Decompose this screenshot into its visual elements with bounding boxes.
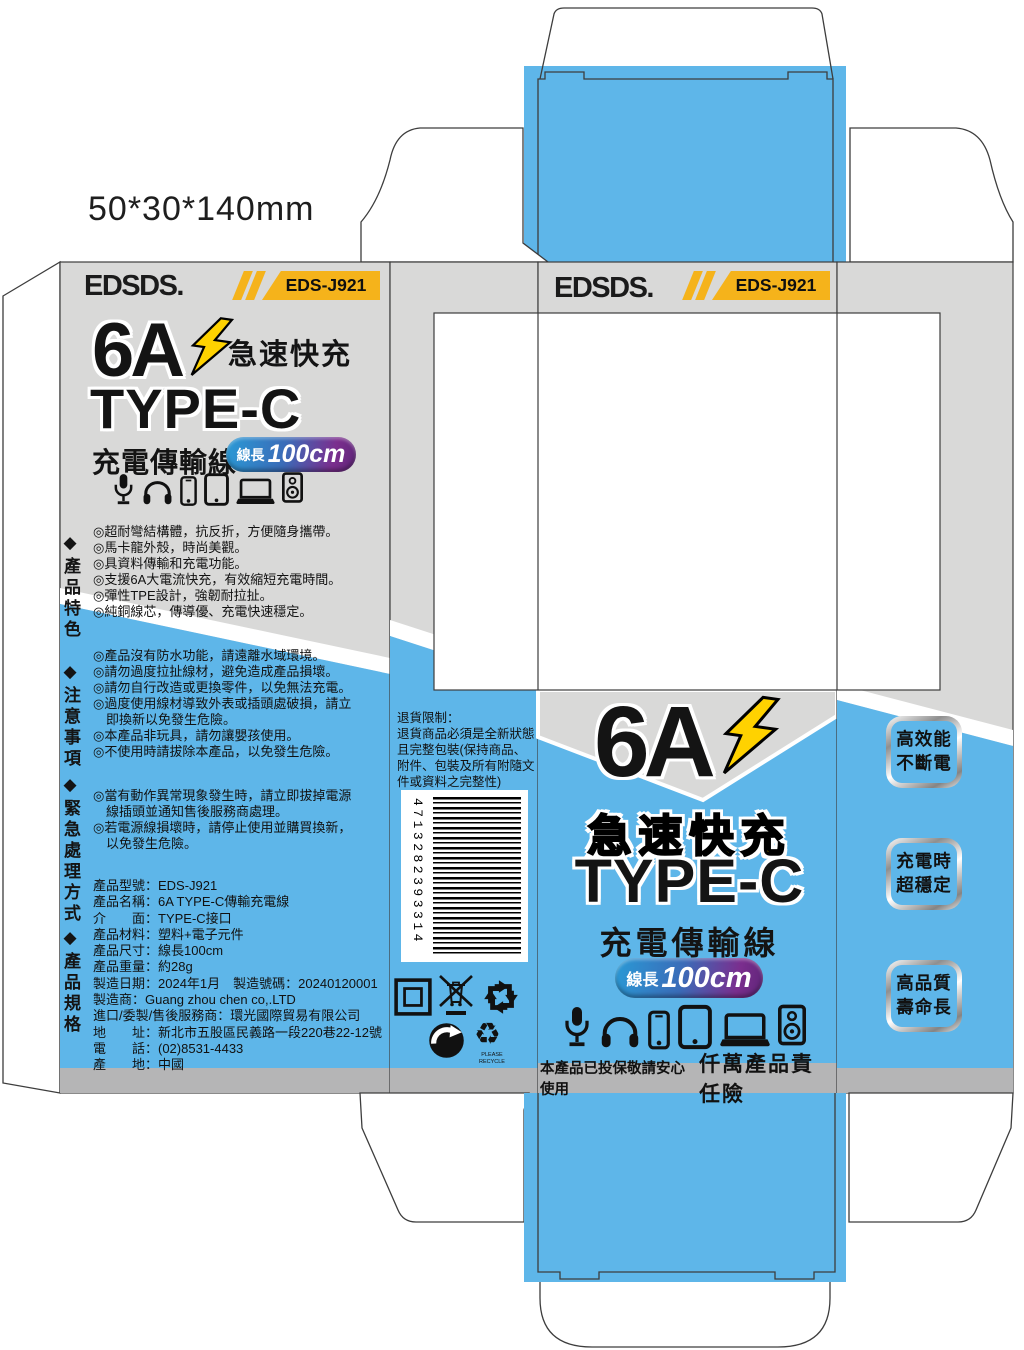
speaker-icon <box>778 1004 806 1046</box>
return-policy-line: 退貨商品必須是全新狀態 <box>397 726 535 742</box>
return-policy-line: 件或資料之完整性) <box>397 774 535 790</box>
feature-line: ◎彈性TPE設計，強韌耐拉扯。 <box>93 588 341 604</box>
smartphone-icon <box>180 476 197 506</box>
connector-title-back: TYPE-C <box>90 381 301 437</box>
caution-line: ◎本產品非玩具，請勿讓嬰孩使用。 <box>93 728 351 744</box>
headphones-icon <box>600 1014 640 1050</box>
spec-line: 產 地：中國 <box>93 1057 382 1073</box>
badge-line: 高品質 <box>896 972 952 996</box>
recycling-arrows-icon <box>480 976 522 1018</box>
spec-line: 介 面：TYPE-C接口 <box>93 911 382 927</box>
spec-line: 地 址：新北市五股區民義路一段220巷22-12號 <box>93 1025 382 1041</box>
right-panel-bottom-strip <box>837 1068 1013 1093</box>
badge-line: 充電時 <box>896 850 952 874</box>
bottom-flap-blue <box>524 1093 846 1282</box>
tablet-icon <box>204 473 229 506</box>
microphone-icon <box>562 1004 592 1050</box>
spec-line: 產品名稱：6A TYPE-C傳輸充電線 <box>93 894 382 910</box>
spec-line: 製造商：Guang zhou chen co,.LTD <box>93 992 382 1008</box>
recycle-caption: PLEASE RECYCLE <box>470 1052 514 1065</box>
model-badge-back: EDS-J921 <box>238 271 382 300</box>
features-list: ◎超耐彎結構體，抗反折，方便隨身攜帶。 ◎馬卡龍外殼，時尚美觀。 ◎具資料傳輸和… <box>93 524 341 620</box>
amp-logo-text: 6A <box>594 686 710 798</box>
emergency-list: ◎當有動作異常現象發生時，請立即拔掉電源 線插頭並通知售後服務商處理。 ◎若電源… <box>93 788 351 852</box>
feature-line: ◎純銅線芯，傳導優、充電快速穩定。 <box>93 604 341 620</box>
speaker-icon <box>282 472 303 503</box>
spec-line: 電 話：(02)8531-4433 <box>93 1041 382 1057</box>
emergency-line: ◎當有動作異常現象發生時，請立即拔掉電源 <box>93 788 351 804</box>
return-policy-line: 退貨限制： <box>397 710 535 726</box>
feature-line: ◎具資料傳輸和充電功能。 <box>93 556 341 572</box>
display-window-cutout <box>434 313 940 690</box>
barcode-bars <box>433 797 521 955</box>
cautions-section-title: ◆注意事項 <box>58 662 83 770</box>
recycle-icons-block: ♻ PLEASE RECYCLE <box>392 972 532 1067</box>
caution-line: ◎請勿自行改造或更換零件，以免無法充電。 <box>93 680 351 696</box>
length-label: 線長 <box>237 445 265 465</box>
return-policy-text: 退貨限制： 退貨商品必須是全新狀態 且完整包裝(保持商品、 附件、包裝及所有附隨… <box>397 710 535 790</box>
bottom-right-flap <box>849 1093 1013 1222</box>
length-label: 線長 <box>626 966 658 990</box>
model-number-text: EDS-J921 <box>276 275 367 296</box>
feature-badge-lifespan: 高品質 壽命長 <box>886 960 962 1032</box>
smartphone-icon <box>648 1010 670 1050</box>
brand-logo-back: EDSDS. <box>84 270 183 303</box>
packaging-dieline-canvas: 50*30*140mm EDSDS. EDS-J921 6A 急速快充 TYPE… <box>0 0 1024 1350</box>
bottom-tuck-lid-outline <box>540 1282 830 1347</box>
return-policy-line: 附件、包裝及所有附隨文 <box>397 758 535 774</box>
spec-line: 進口/委製/售後服務商：環光國際貿易有限公司 <box>93 1008 382 1024</box>
badge-line: 不斷電 <box>896 752 952 776</box>
spec-line: 製造日期：2024年1月 製造號碼：20240120001 <box>93 976 382 992</box>
insurance-strip: 本產品已投保敬請安心使用 仟萬產品責任險 <box>540 1063 837 1093</box>
side-panel-bottom-strip <box>390 1068 538 1093</box>
packaging-box-icon <box>394 978 432 1016</box>
tablet-icon <box>678 1004 712 1050</box>
box-dimensions-label: 50*30*140mm <box>88 190 314 229</box>
badge-line: 壽命長 <box>896 996 952 1020</box>
laptop-icon <box>720 1012 770 1048</box>
spec-line: 產品材料：塑料+電子元件 <box>93 927 382 943</box>
badge-line: 高效能 <box>896 728 952 752</box>
caution-line: ◎產品沒有防水功能，請遠離水域環境。 <box>93 648 351 664</box>
feature-line: ◎馬卡龍外殼，時尚美觀。 <box>93 540 341 556</box>
spec-line: 產品型號：EDS-J921 <box>93 878 382 894</box>
specs-list: 產品型號：EDS-J921 產品名稱：6A TYPE-C傳輸充電線 介 面：TY… <box>93 878 382 1074</box>
insurance-note: 本產品已投保敬請安心使用 <box>540 1057 689 1099</box>
length-value: 100cm <box>661 962 751 995</box>
bottom-left-flap <box>360 1093 529 1222</box>
cautions-list: ◎產品沒有防水功能，請遠離水域環境。 ◎請勿過度拉扯線材，避免造成產品損壞。 ◎… <box>93 648 351 760</box>
laptop-icon <box>236 478 275 505</box>
model-badge-front: EDS-J921 <box>688 271 832 300</box>
feature-line: ◎超耐彎結構體，抗反折，方便隨身攜帶。 <box>93 524 341 540</box>
connector-title-front: TYPE-C <box>540 851 839 912</box>
specs-section-title: ◆產品規格 <box>58 928 83 1036</box>
emergency-section-title: ◆緊急處理方式 <box>58 775 83 925</box>
top-left-flap <box>361 128 548 262</box>
emergency-line: 線插頭並通知售後服務商處理。 <box>93 804 351 820</box>
cable-length-pill-back: 線長 100cm <box>226 437 356 472</box>
model-number-text: EDS-J921 <box>726 275 817 296</box>
top-flap-blue <box>524 66 846 262</box>
feature-line: ◎支援6A大電流快充，有效縮短充電時間。 <box>93 572 341 588</box>
caution-line: 即換新以免發生危險。 <box>93 712 351 728</box>
return-policy-line: 且完整包裝(保持商品、 <box>397 742 535 758</box>
microphone-icon <box>112 472 135 507</box>
headphones-icon <box>142 479 173 506</box>
recycle-triangle-icon: ♻ <box>474 1020 501 1050</box>
green-dot-icon <box>428 1022 465 1059</box>
emergency-line: ◎若電源線損壞時，請停止使用並購買換新， <box>93 820 351 836</box>
feature-badge-stability: 充電時 超穩定 <box>886 838 962 910</box>
barcode: 4713282393314 <box>401 790 528 962</box>
caution-line: ◎過度使用線材導致外表或插頭處破損，請立 <box>93 696 351 712</box>
caution-line: ◎不使用時請拔除本產品，以免發生危險。 <box>93 744 351 760</box>
device-icons-row-back <box>112 470 322 514</box>
amp-logo-front: 6A <box>594 692 710 792</box>
badge-line: 超穩定 <box>896 874 952 898</box>
top-right-flap <box>850 128 1013 262</box>
emergency-line: 以免發生危險。 <box>93 836 351 852</box>
insurance-title: 仟萬產品責任險 <box>699 1048 837 1108</box>
model-number-plate: EDS-J921 <box>262 271 380 300</box>
no-trash-bin-icon <box>438 974 474 1016</box>
cable-length-pill-front: 線長 100cm <box>615 958 763 998</box>
fast-charge-label-back: 急速快充 <box>228 331 352 373</box>
caution-line: ◎請勿過度拉扯線材，避免造成產品損壞。 <box>93 664 351 680</box>
brand-logo-front: EDSDS. <box>554 272 653 305</box>
length-value: 100cm <box>268 440 346 469</box>
spec-line: 產品重量：約28g <box>93 959 382 975</box>
spec-line: 產品尺寸：線長100cm <box>93 943 382 959</box>
features-section-title: ◆產品特色 <box>58 533 83 641</box>
barcode-number: 4713282393314 <box>410 798 425 945</box>
feature-badge-efficiency: 高效能 不斷電 <box>886 716 962 788</box>
model-number-plate: EDS-J921 <box>712 271 830 300</box>
glue-flap <box>3 262 60 1093</box>
